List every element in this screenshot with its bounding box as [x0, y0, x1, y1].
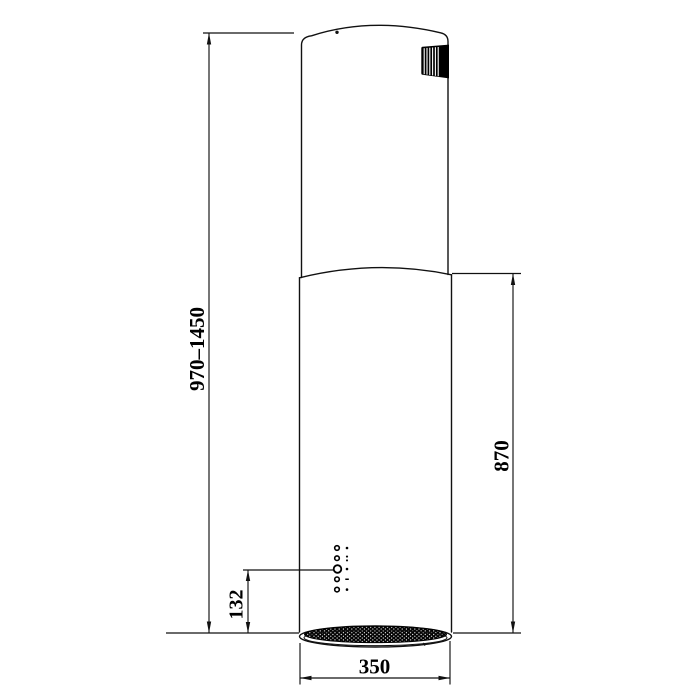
dimension-label-overall-height: 970–1450 — [185, 307, 209, 391]
arrow-right-icon — [439, 676, 451, 680]
dim-overall-height: 970–1450 — [166, 33, 299, 633]
dimension-drawing: 970–1450 870 132 350 — [0, 0, 700, 700]
hood-outline — [300, 25, 452, 632]
dim-body-height: 870 — [452, 274, 521, 634]
control-button — [335, 556, 340, 561]
dimension-label-controls-offset: 132 — [226, 590, 248, 620]
arrow-up-icon — [511, 274, 515, 286]
arrow-left-icon — [300, 676, 312, 680]
lower-cylinder-top-arc — [300, 268, 452, 278]
control-button — [335, 587, 340, 592]
top-vent-dot — [335, 31, 338, 34]
control-button-main — [334, 565, 342, 573]
arrow-down-icon — [511, 622, 515, 634]
indicator-dot — [346, 588, 349, 591]
drawing-canvas: 970–1450 870 132 350 — [0, 0, 700, 700]
hood-base — [300, 626, 452, 647]
indicator-dash — [345, 579, 349, 581]
dim-controls-offset: 132 — [226, 570, 334, 633]
control-panel — [334, 546, 349, 592]
arrow-down-icon — [246, 622, 250, 633]
control-button — [335, 546, 340, 551]
exhaust-duct-icon — [421, 45, 449, 79]
control-button — [335, 577, 340, 582]
arrow-up-icon — [207, 33, 211, 45]
indicator-dot — [346, 559, 348, 561]
control-buttons — [334, 546, 342, 592]
arrow-down-icon — [207, 622, 211, 634]
dimension-label-body-height: 870 — [490, 440, 514, 472]
indicator-dots — [345, 547, 349, 591]
indicator-dot — [346, 568, 349, 571]
indicator-dot — [346, 556, 348, 558]
indicator-dot — [346, 547, 349, 550]
arrow-up-icon — [246, 570, 250, 581]
grease-filter — [305, 626, 447, 642]
dimension-label-diameter: 350 — [359, 655, 391, 679]
